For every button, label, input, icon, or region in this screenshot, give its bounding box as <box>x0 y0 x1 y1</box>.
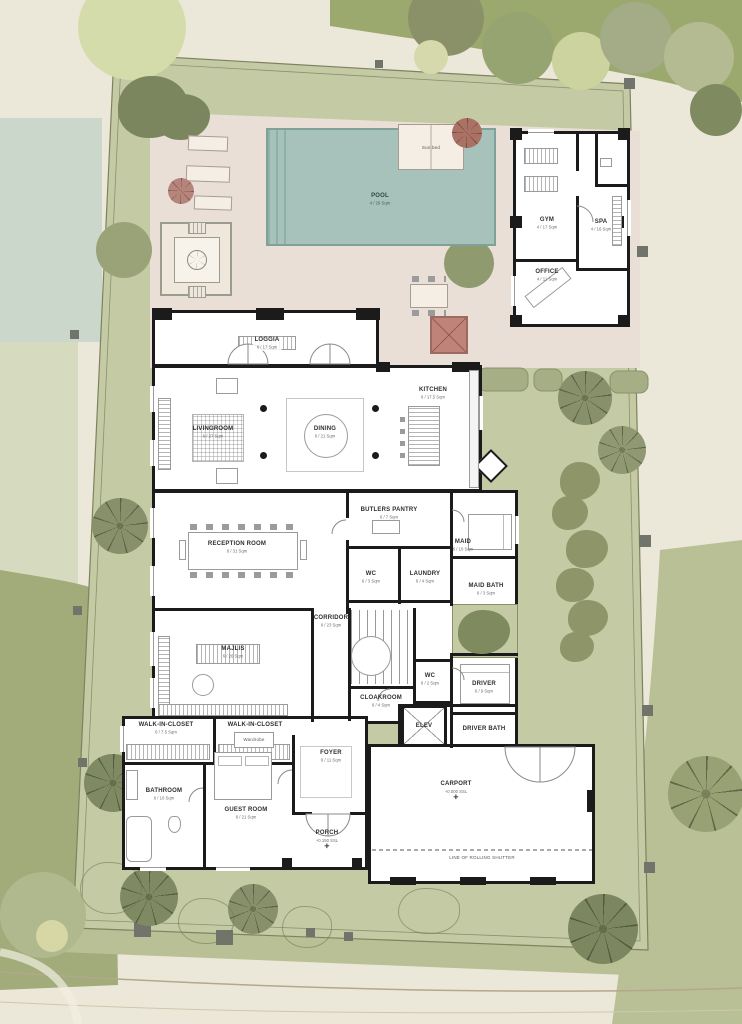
reception-chair <box>179 540 186 560</box>
majlis-sofa <box>158 704 288 716</box>
stairs-curve <box>351 636 391 676</box>
room-label-dining: DINING6 / 21 Sqm <box>313 426 337 440</box>
tree-icon <box>414 40 448 74</box>
window <box>216 864 250 871</box>
spa-bench <box>612 196 622 246</box>
armchair <box>216 468 238 484</box>
side-table-icon <box>168 178 194 204</box>
reception-chairs <box>190 524 296 530</box>
room-label-closet1: WALK-IN-CLOSET6 / 7.5 Sqm <box>139 722 194 736</box>
vanity <box>126 770 138 800</box>
room-label-office: OFFICE4 / 11 Sqm <box>535 269 559 283</box>
pillow <box>245 756 269 766</box>
window <box>140 864 166 871</box>
tree-icon <box>598 426 646 474</box>
label-wardrobe: Wardrobe <box>243 737 264 743</box>
neighbor-pool-left <box>0 118 102 342</box>
tree-icon <box>96 222 152 278</box>
sofa <box>158 398 171 470</box>
column <box>376 362 390 372</box>
sun-lounger <box>188 135 228 151</box>
column <box>256 308 284 320</box>
gym-mat <box>524 176 558 192</box>
tree-icon <box>668 756 742 832</box>
room-label-spa: SPA4 / 16 Sqm <box>589 219 613 233</box>
closet-shelves <box>126 744 210 760</box>
tree-icon <box>92 498 148 554</box>
toilet <box>168 816 181 833</box>
sun-lounger <box>186 165 231 183</box>
porch-column <box>282 858 292 867</box>
carport-pier <box>530 877 556 885</box>
column <box>618 128 630 140</box>
wall <box>595 184 627 187</box>
column <box>372 405 379 412</box>
wall <box>292 735 295 815</box>
wall <box>576 196 579 268</box>
window <box>150 440 157 466</box>
wall <box>350 812 368 815</box>
fire-table-icon <box>187 250 207 270</box>
shrub-outline-icon <box>282 906 332 948</box>
sun-lounger <box>194 195 232 210</box>
column <box>372 452 379 459</box>
column <box>260 452 267 459</box>
wall <box>413 701 450 704</box>
pillow <box>218 756 242 766</box>
column <box>152 308 172 320</box>
room-label-laundry: LAUNDRY6 / 4 Sqm <box>410 571 441 585</box>
porch-column <box>352 858 362 867</box>
outdoor-dining-table <box>410 284 448 308</box>
pergola <box>430 316 468 354</box>
wall <box>346 490 349 518</box>
window <box>150 678 157 708</box>
sunken-lounge <box>160 222 232 296</box>
room-label-majlis: MAJLIS6 / 26 Sqm <box>221 646 245 660</box>
reception-chairs <box>190 572 296 578</box>
tree-icon <box>568 894 638 964</box>
room-label-driver-bath: DRIVER BATH <box>463 726 506 734</box>
tree-icon <box>558 371 612 425</box>
sunken-steps <box>188 286 206 298</box>
room-label-bathroom: BATHROOM6 / 10 Sqm <box>145 788 183 802</box>
room-label-kitchen: KITCHEN6 / 17.5 Sqm <box>419 387 447 401</box>
armchair <box>216 378 238 394</box>
room-label-guest-room: GUEST ROOM6 / 21 Sqm <box>224 807 267 821</box>
column <box>356 308 380 320</box>
window <box>150 632 157 666</box>
wall <box>152 608 314 611</box>
kitchen-counter <box>469 370 479 488</box>
room-label-butlers-pantry: BUTLERS PANTRY6 / 7 Sqm <box>361 507 418 521</box>
tree-icon <box>482 12 554 84</box>
room-label-livingroom: LIVINGROOM6 / 27 Sqm <box>193 426 234 440</box>
wall <box>595 131 598 184</box>
room-label-wc: WC6 / 3 Sqm <box>360 571 381 585</box>
room-label-maid: MAID6 / 10 Sqm <box>451 539 475 553</box>
gym-mat <box>524 148 558 164</box>
room-label-reception: RECEPTION ROOM6 / 31 Sqm <box>208 541 266 555</box>
tree-icon <box>600 2 672 74</box>
wall <box>346 600 452 603</box>
carport-block <box>368 744 595 884</box>
window <box>511 276 518 306</box>
window <box>512 516 519 544</box>
wall <box>576 268 627 271</box>
carport-pier <box>390 877 416 885</box>
shrub-outline-icon <box>178 898 234 944</box>
pool-steps <box>268 130 292 244</box>
room-label-cloakroom: CLOAKROOM6 / 4 Sqm <box>360 695 402 709</box>
wall <box>351 686 413 689</box>
wall <box>516 259 576 262</box>
column <box>260 405 267 412</box>
guest-bed <box>214 752 272 800</box>
tree-icon <box>664 22 734 92</box>
label-rolling-shutter: LINE OF ROLLING SHUTTER <box>449 855 515 861</box>
window <box>624 200 631 236</box>
column <box>510 315 522 327</box>
carport-pier <box>587 790 595 812</box>
wall <box>398 546 401 604</box>
room-label-pool: POOL4 / 29 Sqm <box>368 193 392 207</box>
room-label-carport: CARPORT+0.000 SSL✛ <box>440 781 471 803</box>
site-plan: POOL4 / 29 Sqm Sun bed GYM4 / 17 Sqm SPA… <box>0 0 742 1024</box>
column <box>510 128 522 140</box>
wall <box>292 812 312 815</box>
outdoor-chairs <box>412 276 446 282</box>
room-label-loggia: LOGGIA6 / 17 Sqm <box>253 337 282 351</box>
tree-icon <box>690 84 742 136</box>
room-label-porch: PORCH+0.150 SSL✛ <box>314 830 340 852</box>
column <box>510 216 522 228</box>
room-label-closet2: WALK-IN-CLOSET <box>228 722 283 730</box>
room-label-elev: ELEV <box>416 723 432 731</box>
carport-pier <box>460 877 486 885</box>
sunken-steps <box>188 222 206 234</box>
wall <box>450 656 453 748</box>
wall <box>576 131 579 171</box>
window <box>528 129 554 136</box>
window <box>150 566 157 596</box>
tree-icon <box>36 920 68 952</box>
room-label-gym: GYM4 / 17 Sqm <box>535 217 559 231</box>
kitchen-stools <box>400 414 405 458</box>
tree-icon <box>228 884 278 934</box>
room-label-driver: DRIVER6 / 9 Sqm <box>472 681 496 695</box>
wall <box>203 762 206 870</box>
survey-marker-icon: ✛ <box>324 844 329 850</box>
sink <box>600 158 612 167</box>
wall <box>450 556 518 559</box>
room-label-wc2: WC6 / 2 Sqm <box>419 673 440 687</box>
survey-marker-icon: ✛ <box>453 795 458 801</box>
column <box>618 315 630 327</box>
room-label-maid-bath: MAID BATH6 / 3 Sqm <box>468 583 503 597</box>
wall <box>413 659 450 662</box>
label-sun-bed: Sun bed <box>422 145 440 151</box>
pantry-island <box>372 520 400 534</box>
room-label-corridor: CORRIDOR6 / 23 Sqm <box>314 615 348 629</box>
shrub-outline-icon <box>398 888 460 934</box>
umbrella-icon <box>452 118 482 148</box>
room-label-foyer: FOYER6 / 11 Sqm <box>319 750 343 764</box>
majlis-pouf <box>192 674 214 696</box>
wall <box>413 608 416 704</box>
reception-chair <box>300 540 307 560</box>
window <box>150 508 157 538</box>
kitchen-island <box>408 406 440 466</box>
window <box>150 386 157 412</box>
bathtub <box>126 816 152 862</box>
wall <box>450 712 518 715</box>
outdoor-chairs <box>412 310 446 316</box>
